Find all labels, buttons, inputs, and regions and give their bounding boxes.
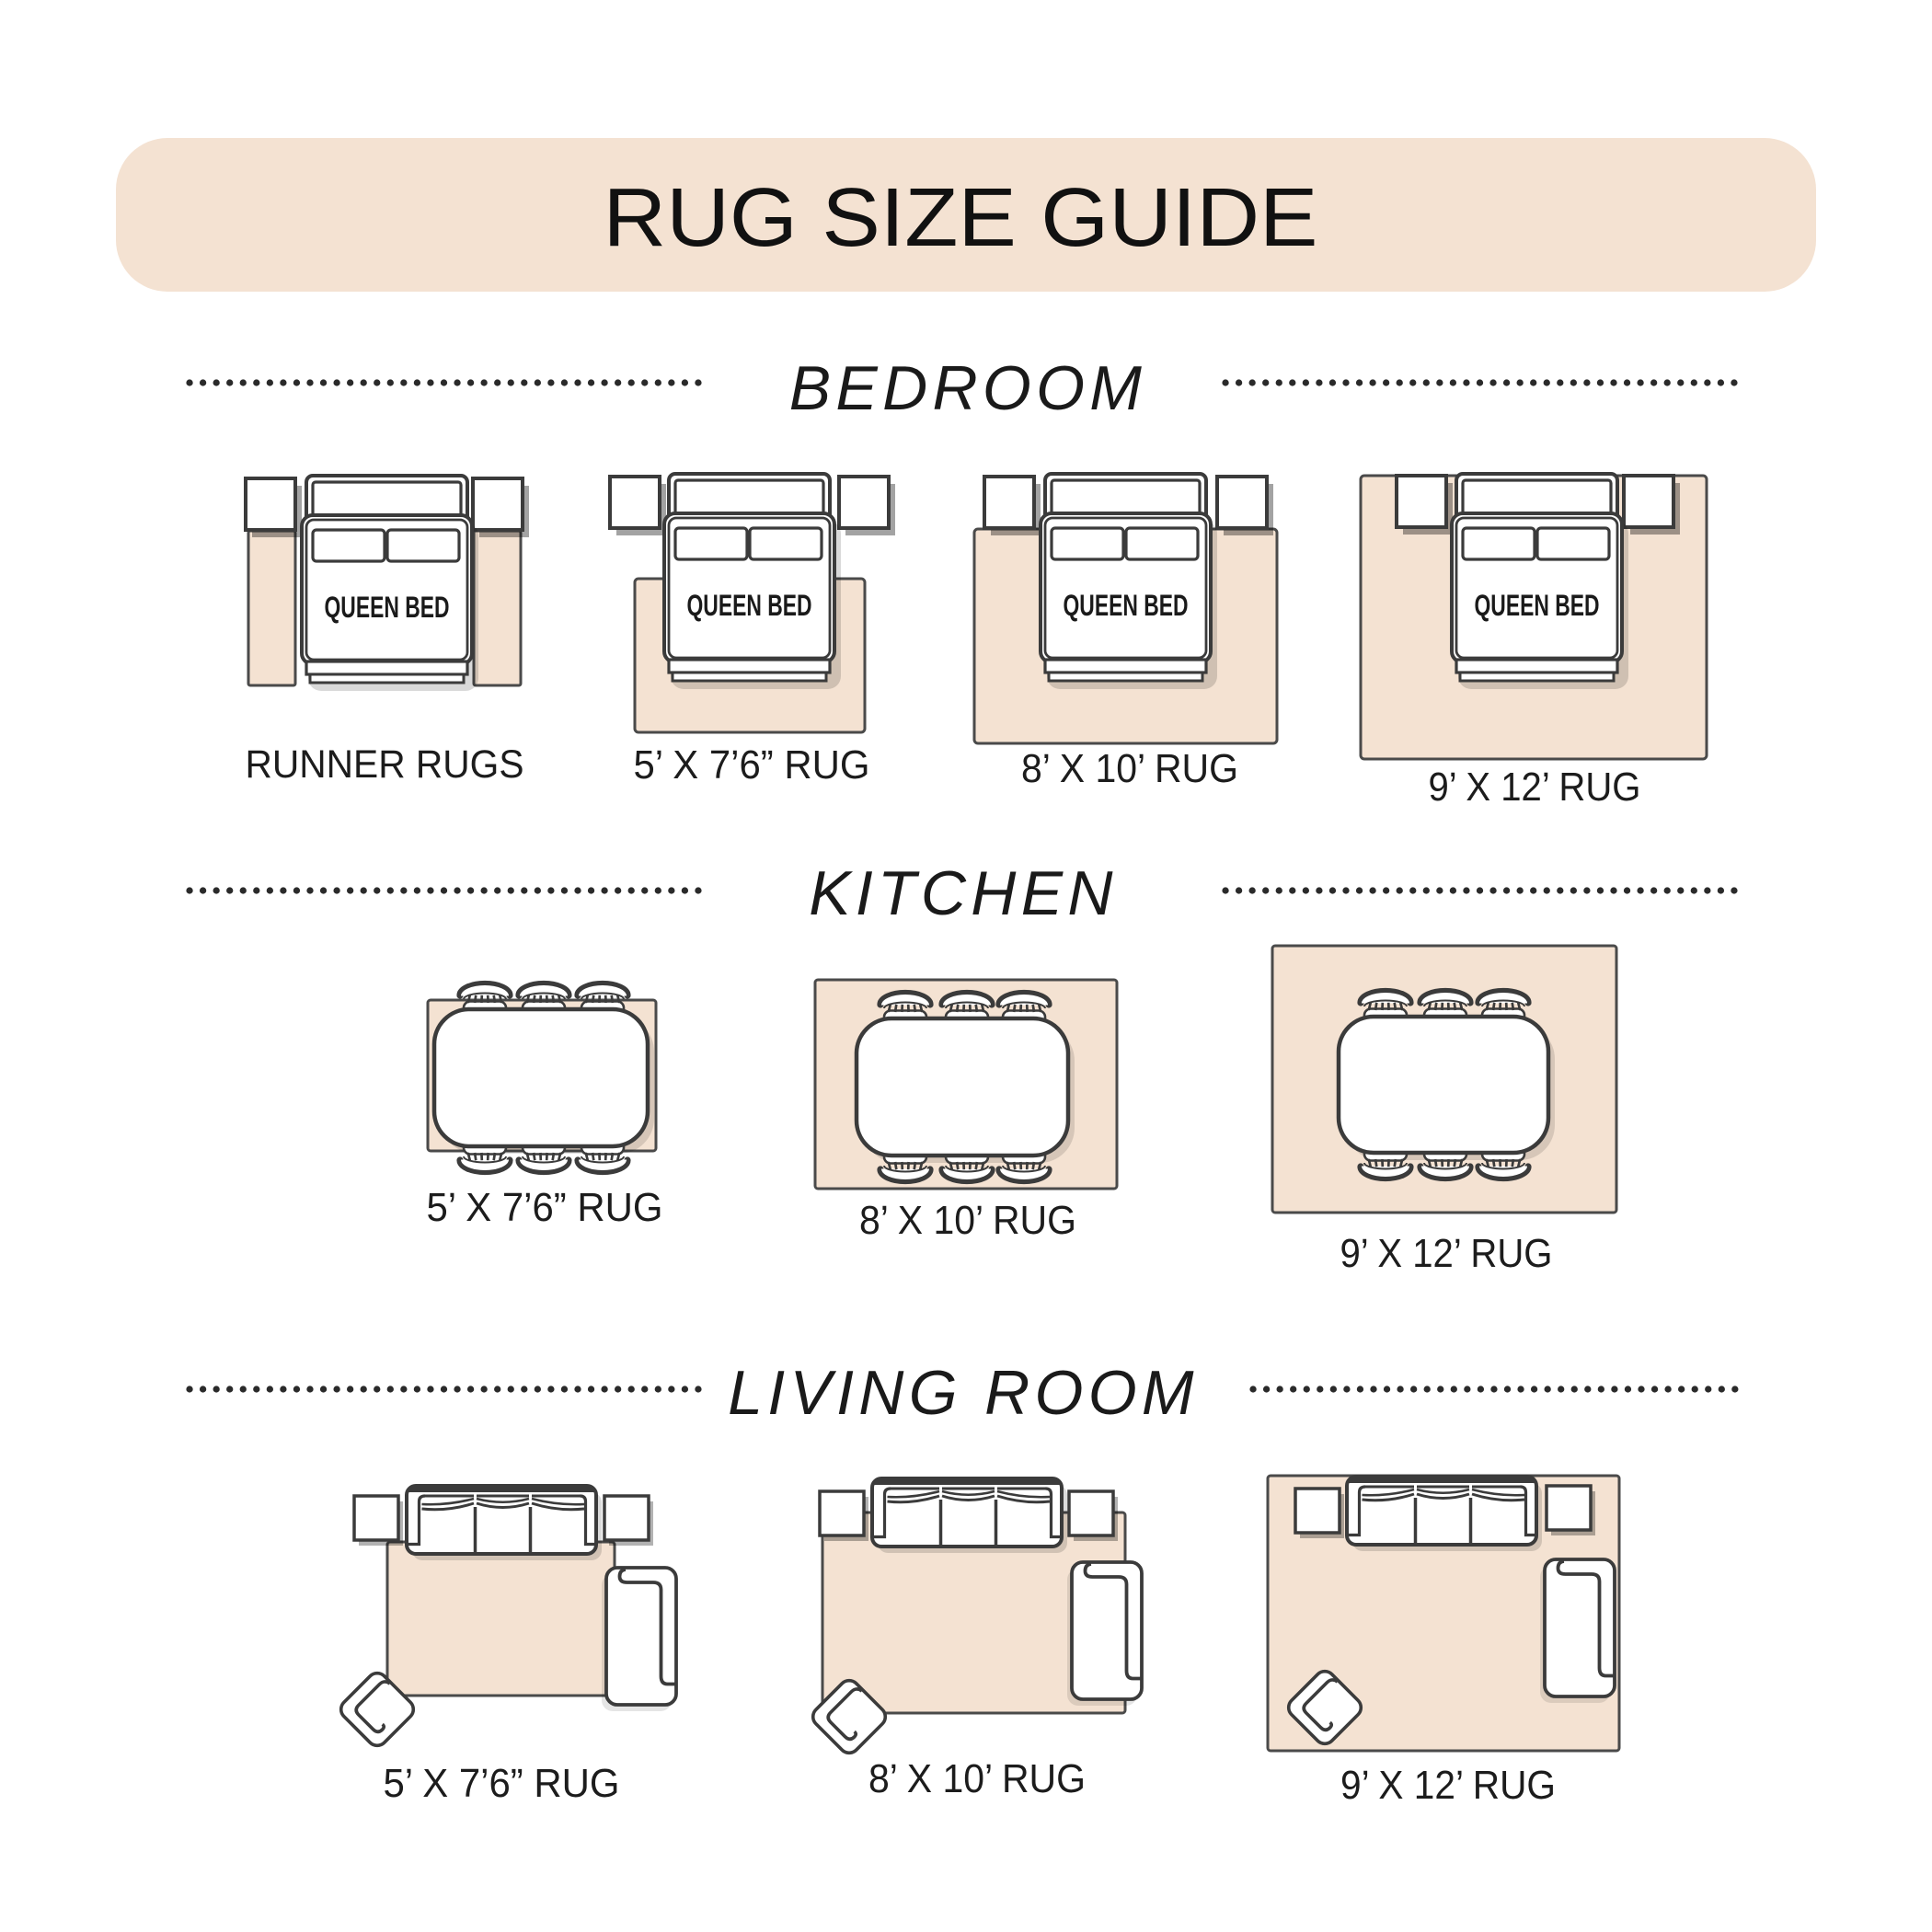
- svg-text:5’ X 7’6” RUG: 5’ X 7’6” RUG: [384, 1761, 620, 1806]
- svg-text:LIVING ROOM: LIVING ROOM: [728, 1358, 1199, 1428]
- svg-text:BEDROOM: BEDROOM: [789, 353, 1146, 423]
- svg-text:QUEEN BED: QUEEN BED: [687, 589, 812, 622]
- svg-text:9’ X 12’ RUG: 9’ X 12’ RUG: [1429, 765, 1641, 810]
- svg-text:9’ X 12’ RUG: 9’ X 12’ RUG: [1340, 1763, 1556, 1808]
- svg-text:8’ X 10’ RUG: 8’ X 10’ RUG: [868, 1756, 1086, 1801]
- svg-text:QUEEN BED: QUEEN BED: [325, 591, 450, 624]
- svg-text:KITCHEN: KITCHEN: [809, 858, 1118, 928]
- svg-text:9’ X 12’ RUG: 9’ X 12’ RUG: [1340, 1231, 1553, 1276]
- svg-text:RUG SIZE GUIDE: RUG SIZE GUIDE: [604, 172, 1318, 264]
- svg-text:8’ X 10’ RUG: 8’ X 10’ RUG: [859, 1198, 1076, 1243]
- svg-text:QUEEN BED: QUEEN BED: [1064, 589, 1189, 622]
- svg-text:5’ X 7’6” RUG: 5’ X 7’6” RUG: [634, 742, 870, 788]
- svg-text:8’ X 10’ RUG: 8’ X 10’ RUG: [1021, 746, 1238, 791]
- svg-text:RUNNER RUGS: RUNNER RUGS: [246, 742, 524, 787]
- svg-text:QUEEN BED: QUEEN BED: [1475, 589, 1600, 622]
- svg-text:5’ X 7’6” RUG: 5’ X 7’6” RUG: [427, 1185, 663, 1230]
